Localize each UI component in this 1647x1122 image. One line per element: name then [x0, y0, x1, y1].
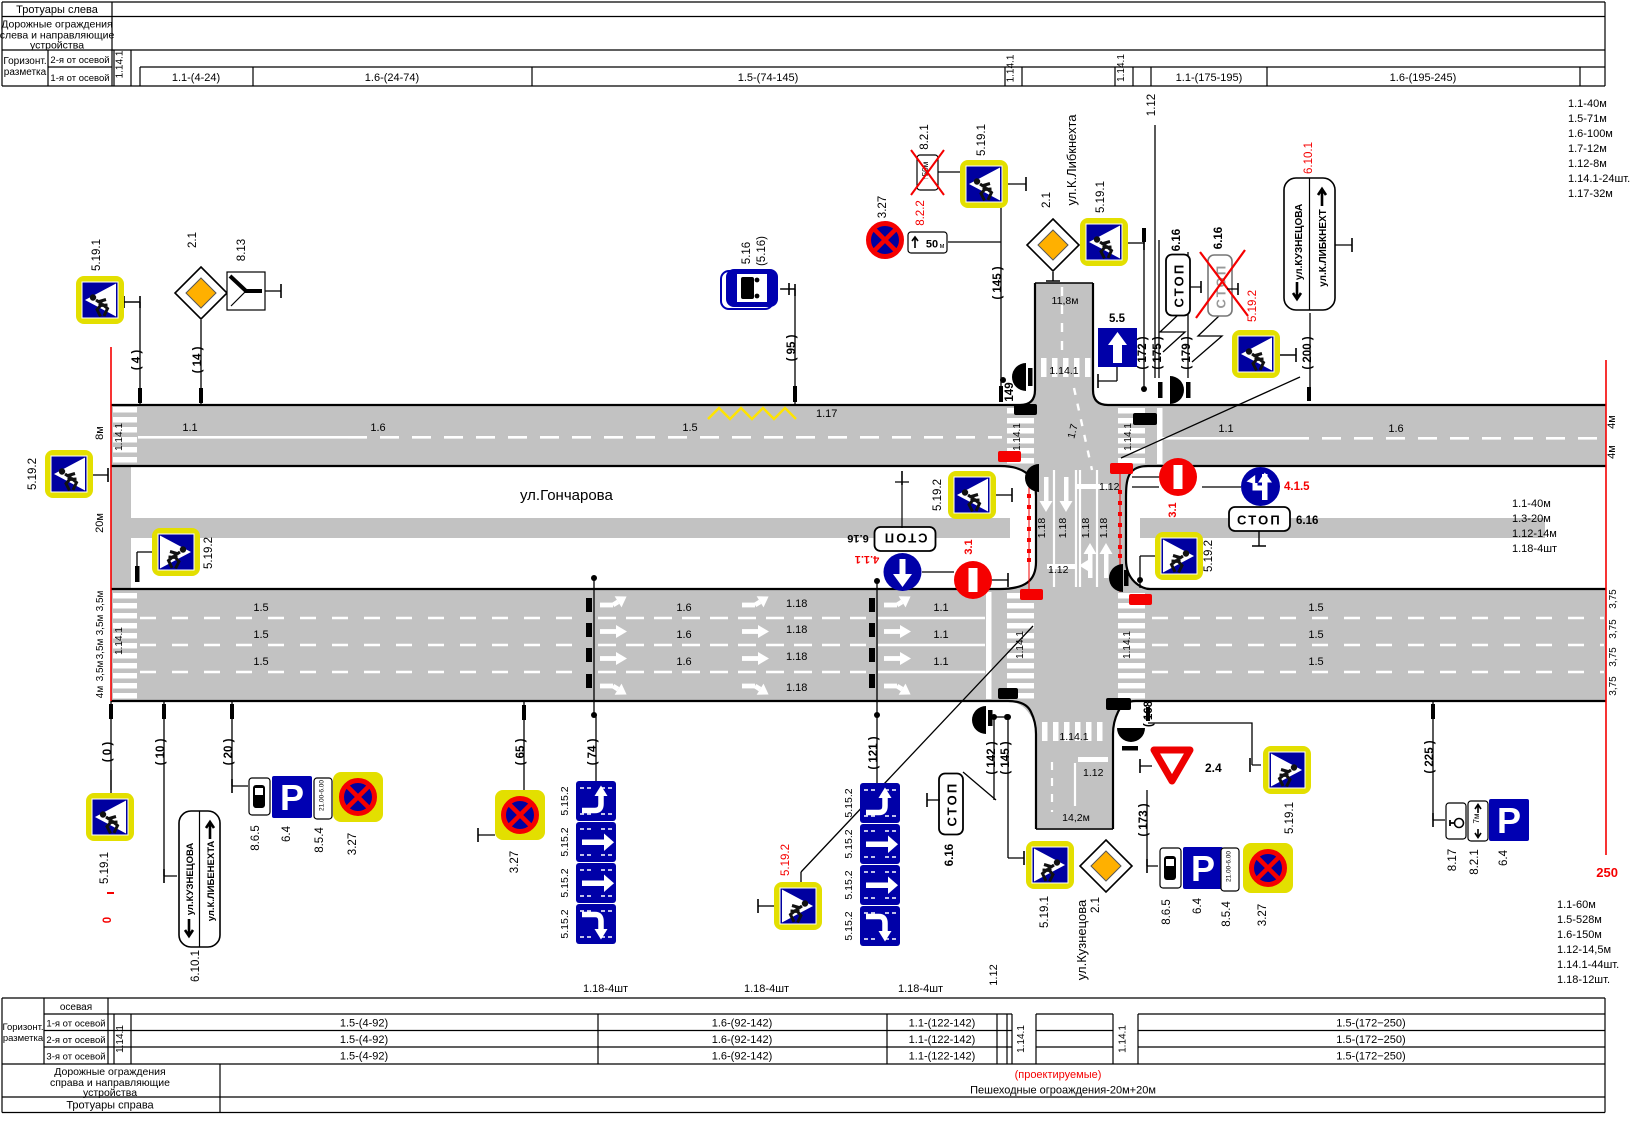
- svg-text:1.14.1: 1.14.1: [1059, 731, 1088, 743]
- svg-text:1.14.1: 1.14.1: [1012, 423, 1023, 451]
- svg-text:( 225 ): ( 225 ): [1424, 740, 1436, 773]
- svg-text:1.14.1: 1.14.1: [115, 1025, 126, 1053]
- svg-text:1.5: 1.5: [253, 602, 268, 614]
- svg-text:( 172 ): ( 172 ): [1137, 336, 1149, 369]
- svg-text:1.5-(172−250): 1.5-(172−250): [1336, 1051, 1405, 1063]
- svg-text:8.5.4: 8.5.4: [314, 827, 326, 853]
- svg-text:1.3-20м: 1.3-20м: [1512, 513, 1551, 525]
- svg-text:1.6: 1.6: [676, 629, 691, 641]
- svg-text:6.10.1: 6.10.1: [1303, 142, 1315, 174]
- svg-text:8.5.4: 8.5.4: [1221, 901, 1233, 927]
- svg-text:1.12-14,5м: 1.12-14,5м: [1557, 944, 1611, 956]
- svg-text:250: 250: [1596, 865, 1618, 880]
- svg-text:( 20 ): ( 20 ): [223, 738, 235, 765]
- svg-text:ул.К.ЛИБЕНЕХТА: ул.К.ЛИБЕНЕХТА: [206, 841, 217, 922]
- svg-text:ул.Гончарова: ул.Гончарова: [520, 487, 613, 504]
- svg-text:3,75: 3,75: [1608, 589, 1619, 609]
- svg-text:1.18: 1.18: [786, 651, 807, 663]
- svg-text:4м: 4м: [1606, 445, 1618, 459]
- svg-text:1.6: 1.6: [676, 602, 691, 614]
- svg-text:1.6-(92-142): 1.6-(92-142): [712, 1018, 773, 1030]
- svg-text:5.19.1: 5.19.1: [1284, 802, 1296, 834]
- svg-text:1.12-8м: 1.12-8м: [1568, 158, 1607, 170]
- svg-text:1.18-4шт: 1.18-4шт: [583, 983, 628, 995]
- svg-text:50: 50: [926, 239, 938, 251]
- svg-text:6.16: 6.16: [1171, 229, 1183, 251]
- svg-text:ул.К.ЛИБКНЕХТ: ул.К.ЛИБКНЕХТ: [1318, 209, 1329, 287]
- svg-text:5.19.2: 5.19.2: [1203, 540, 1215, 572]
- svg-text:3.1: 3.1: [1167, 502, 1179, 517]
- svg-text:1-я от осевой: 1-я от осевой: [50, 73, 109, 84]
- svg-text:Горизонт.: Горизонт.: [3, 56, 46, 67]
- svg-text:8.17: 8.17: [1447, 849, 1459, 871]
- svg-text:5.19.1: 5.19.1: [1039, 896, 1051, 928]
- svg-text:устройства: устройства: [83, 1087, 137, 1099]
- svg-text:1.1-(122-142): 1.1-(122-142): [909, 1051, 976, 1063]
- svg-text:( 14 ): ( 14 ): [192, 346, 204, 373]
- svg-text:2-я от осевой: 2-я от осевой: [46, 1035, 105, 1046]
- svg-text:1.18: 1.18: [1036, 518, 1048, 539]
- svg-text:разметка: разметка: [4, 67, 47, 78]
- svg-text:ул.К.Либкнехта: ул.К.Либкнехта: [1064, 114, 1079, 206]
- svg-text:1.1-(122-142): 1.1-(122-142): [909, 1018, 976, 1030]
- svg-text:5.19.1: 5.19.1: [1095, 181, 1107, 213]
- svg-text:( 173 ): ( 173 ): [1138, 803, 1150, 836]
- svg-text:1.1: 1.1: [182, 422, 197, 434]
- svg-text:1.1: 1.1: [933, 629, 948, 641]
- svg-text:2-я от осевой: 2-я от осевой: [50, 55, 109, 66]
- svg-text:1.5-(74-145): 1.5-(74-145): [738, 72, 799, 84]
- svg-text:3.27: 3.27: [877, 196, 889, 218]
- svg-text:1-я от осевой: 1-я от осевой: [46, 1019, 105, 1030]
- svg-text:( 179 ): ( 179 ): [1181, 336, 1193, 369]
- svg-text:1.14.1-44шт.: 1.14.1-44шт.: [1557, 959, 1619, 971]
- svg-text:3,75: 3,75: [1608, 619, 1619, 639]
- svg-text:1.12: 1.12: [988, 964, 1000, 985]
- svg-text:2.1: 2.1: [1041, 192, 1053, 208]
- svg-text:3,75: 3,75: [1608, 647, 1619, 667]
- svg-text:5.15.2: 5.15.2: [559, 786, 571, 815]
- svg-text:разметка: разметка: [3, 1033, 44, 1044]
- svg-text:Тротуары справа: Тротуары справа: [66, 1100, 154, 1112]
- svg-text:6.4: 6.4: [1498, 849, 1510, 866]
- svg-text:1.5-(172−250): 1.5-(172−250): [1336, 1018, 1405, 1030]
- svg-text:6.16: 6.16: [847, 532, 868, 544]
- svg-text:1.18: 1.18: [1098, 518, 1110, 539]
- svg-text:1.1-(175-195): 1.1-(175-195): [1176, 72, 1243, 84]
- svg-text:1.5-(4-92): 1.5-(4-92): [340, 1034, 388, 1046]
- svg-text:6.16: 6.16: [944, 844, 956, 866]
- svg-text:149: 149: [1004, 382, 1016, 401]
- svg-text:5.19.1: 5.19.1: [99, 852, 111, 884]
- svg-text:( 145 ): ( 145 ): [992, 266, 1004, 299]
- svg-text:1.7-12м: 1.7-12м: [1568, 143, 1607, 155]
- svg-text:5.15.2: 5.15.2: [843, 788, 855, 817]
- svg-text:( 175 ): ( 175 ): [1152, 336, 1164, 369]
- svg-text:5.15.2: 5.15.2: [843, 870, 855, 899]
- svg-text:Горизонт.: Горизонт.: [2, 1022, 43, 1033]
- svg-text:5.15.2: 5.15.2: [843, 829, 855, 858]
- svg-text:1.1: 1.1: [933, 602, 948, 614]
- svg-text:1.12: 1.12: [1048, 564, 1069, 576]
- svg-text:3.27: 3.27: [347, 833, 359, 855]
- svg-text:2.4: 2.4: [1205, 761, 1222, 775]
- svg-text:1.18-4шт: 1.18-4шт: [1512, 543, 1557, 555]
- svg-text:3.27: 3.27: [509, 851, 521, 873]
- svg-text:4.1.5: 4.1.5: [1284, 481, 1310, 493]
- svg-text:3,5м: 3,5м: [95, 614, 106, 635]
- svg-text:0: 0: [102, 917, 114, 923]
- svg-text:( 200 ): ( 200 ): [1302, 336, 1314, 369]
- svg-text:1.14.1: 1.14.1: [1006, 54, 1017, 82]
- svg-text:1.14.1: 1.14.1: [1123, 423, 1134, 451]
- svg-text:5.15.2: 5.15.2: [843, 911, 855, 940]
- svg-text:21.00-6.00: 21.00-6.00: [319, 780, 326, 811]
- svg-text:14,2м: 14,2м: [1062, 812, 1090, 824]
- svg-text:6.10.1: 6.10.1: [190, 950, 202, 982]
- svg-text:2.1: 2.1: [1090, 897, 1102, 913]
- svg-text:4м: 4м: [95, 686, 106, 699]
- svg-text:5.19.2: 5.19.2: [780, 844, 792, 876]
- svg-text:1.14.1: 1.14.1: [1116, 54, 1127, 82]
- svg-text:3,5м: 3,5м: [95, 660, 106, 681]
- svg-text:1.12: 1.12: [1083, 767, 1104, 779]
- svg-text:5.15.2: 5.15.2: [559, 909, 571, 938]
- svg-text:( 10 ): ( 10 ): [155, 738, 167, 765]
- svg-text:( 95 ): ( 95 ): [786, 334, 798, 361]
- svg-text:5.19.2: 5.19.2: [1247, 290, 1259, 322]
- svg-text:( 74 ): ( 74 ): [587, 738, 599, 765]
- svg-text:1.18-4шт: 1.18-4шт: [898, 983, 943, 995]
- svg-text:1.14.1: 1.14.1: [1122, 631, 1133, 659]
- svg-text:3,75: 3,75: [1608, 676, 1619, 696]
- svg-text:1.14.1: 1.14.1: [114, 423, 125, 451]
- svg-text:8.6.5: 8.6.5: [250, 825, 262, 851]
- svg-text:1.5: 1.5: [682, 422, 697, 434]
- svg-text:1.6-(92-142): 1.6-(92-142): [712, 1051, 773, 1063]
- svg-text:8.13: 8.13: [236, 239, 248, 261]
- svg-text:1.5: 1.5: [1308, 656, 1323, 668]
- svg-text:3,5м: 3,5м: [95, 638, 106, 659]
- svg-text:1.14.1: 1.14.1: [115, 50, 126, 78]
- svg-text:1.5: 1.5: [1308, 602, 1323, 614]
- svg-text:1.18: 1.18: [786, 624, 807, 636]
- svg-text:Пешеходные огроаждения-20м+20м: Пешеходные огроаждения-20м+20м: [970, 1085, 1156, 1097]
- svg-text:21.00-6.00: 21.00-6.00: [1226, 851, 1233, 882]
- svg-text:4м: 4м: [1606, 415, 1618, 429]
- svg-text:6.16: 6.16: [1296, 515, 1318, 527]
- svg-text:8м: 8м: [94, 426, 106, 440]
- svg-text:1.5-(4-92): 1.5-(4-92): [340, 1018, 388, 1030]
- svg-text:1.18-4шт: 1.18-4шт: [744, 983, 789, 995]
- svg-text:8.2.1: 8.2.1: [919, 124, 931, 150]
- svg-text:3,5м: 3,5м: [95, 590, 106, 611]
- svg-text:5.19.2: 5.19.2: [27, 458, 39, 490]
- svg-text:1.5: 1.5: [253, 656, 268, 668]
- svg-text:1.6-(92-142): 1.6-(92-142): [712, 1034, 773, 1046]
- svg-text:1.18: 1.18: [1057, 518, 1069, 539]
- svg-text:1.1-40м: 1.1-40м: [1512, 498, 1551, 510]
- svg-text:1.5-528м: 1.5-528м: [1557, 914, 1602, 926]
- svg-text:1.5-71м: 1.5-71м: [1568, 113, 1607, 125]
- svg-text:1.5-(172−250): 1.5-(172−250): [1336, 1034, 1405, 1046]
- svg-text:1.17-32м: 1.17-32м: [1568, 188, 1613, 200]
- svg-text:( 0 ): ( 0 ): [102, 742, 114, 763]
- svg-text:3.1: 3.1: [963, 539, 975, 554]
- svg-text:1.14.1: 1.14.1: [1118, 1025, 1129, 1053]
- svg-text:1.12: 1.12: [1099, 481, 1120, 493]
- svg-text:1.6: 1.6: [1388, 423, 1403, 435]
- svg-text:5.5: 5.5: [1109, 313, 1126, 325]
- svg-text:1.1-40м: 1.1-40м: [1568, 98, 1607, 110]
- svg-text:1.18-12шт.: 1.18-12шт.: [1557, 974, 1610, 986]
- svg-text:1.14.1-24шт.: 1.14.1-24шт.: [1568, 173, 1630, 185]
- svg-text:1.1: 1.1: [933, 656, 948, 668]
- svg-text:1.14.1: 1.14.1: [1016, 1025, 1027, 1053]
- svg-text:1.18: 1.18: [786, 682, 807, 694]
- svg-text:8.2.2: 8.2.2: [915, 200, 927, 226]
- svg-text:6.16: 6.16: [1213, 227, 1225, 249]
- svg-text:1.1-60м: 1.1-60м: [1557, 899, 1596, 911]
- svg-text:5.15.2: 5.15.2: [559, 868, 571, 897]
- svg-text:1.18: 1.18: [786, 598, 807, 610]
- svg-text:1.6-(24-74): 1.6-(24-74): [365, 72, 419, 84]
- svg-text:1.1: 1.1: [1218, 423, 1233, 435]
- svg-text:( 65 ): ( 65 ): [515, 738, 527, 765]
- svg-text:1.17: 1.17: [816, 408, 837, 420]
- svg-text:1.5: 1.5: [253, 629, 268, 641]
- svg-text:11,8м: 11,8м: [1052, 295, 1079, 307]
- svg-text:1.5-(4-92): 1.5-(4-92): [340, 1051, 388, 1063]
- svg-text:7м: 7м: [1472, 814, 1481, 824]
- svg-text:3.27: 3.27: [1257, 904, 1269, 926]
- svg-text:5.19.1: 5.19.1: [976, 124, 988, 156]
- svg-text:1.1-(122-142): 1.1-(122-142): [909, 1034, 976, 1046]
- svg-text:1.5: 1.5: [1308, 629, 1323, 641]
- svg-text:Тротуары слева: Тротуары слева: [16, 4, 99, 16]
- svg-text:1.12: 1.12: [1146, 94, 1158, 116]
- svg-text:(5.16): (5.16): [756, 236, 768, 266]
- svg-text:2.1: 2.1: [187, 232, 199, 248]
- svg-text:(проектируемые): (проектируемые): [1015, 1069, 1102, 1081]
- svg-text:8.6.5: 8.6.5: [1161, 899, 1173, 925]
- svg-text:( 168: ( 168: [1143, 700, 1155, 727]
- svg-text:5.19.1: 5.19.1: [91, 239, 103, 271]
- svg-text:1.12-14м: 1.12-14м: [1512, 528, 1557, 540]
- svg-text:устройства: устройства: [30, 40, 84, 52]
- svg-text:1.14.1: 1.14.1: [114, 627, 125, 655]
- svg-text:6.4: 6.4: [1192, 897, 1204, 914]
- svg-text:осевая: осевая: [60, 1002, 92, 1013]
- svg-text:8.2.1: 8.2.1: [1469, 849, 1481, 875]
- svg-text:1.6: 1.6: [676, 656, 691, 668]
- svg-text:3-я от осевой: 3-я от осевой: [46, 1052, 105, 1063]
- svg-text:м: м: [940, 243, 945, 250]
- svg-text:ул.КУЗНЕЦОВА: ул.КУЗНЕЦОВА: [1294, 204, 1305, 280]
- svg-text:20м: 20м: [94, 513, 106, 533]
- svg-text:( 121 ): ( 121 ): [868, 736, 880, 769]
- svg-text:( 142 ): ( 142 ): [986, 741, 998, 774]
- svg-text:1.6: 1.6: [370, 422, 385, 434]
- svg-text:1.6-100м: 1.6-100м: [1568, 128, 1613, 140]
- svg-text:1.1-(4-24): 1.1-(4-24): [172, 72, 220, 84]
- svg-text:1.6-(195-245): 1.6-(195-245): [1390, 72, 1457, 84]
- svg-text:5.15.2: 5.15.2: [559, 827, 571, 856]
- svg-text:1.6-150м: 1.6-150м: [1557, 929, 1602, 941]
- svg-text:( 4 ): ( 4 ): [131, 350, 143, 371]
- svg-text:4.1.1: 4.1.1: [855, 553, 879, 565]
- svg-text:1.14.1: 1.14.1: [1049, 365, 1078, 377]
- svg-text:6.4: 6.4: [281, 825, 293, 842]
- svg-text:5.19.2: 5.19.2: [932, 479, 944, 511]
- svg-text:ул.Кузнецова: ул.Кузнецова: [1074, 899, 1089, 980]
- svg-text:( 145 ): ( 145 ): [1000, 741, 1012, 774]
- svg-text:ул.КУЗНЕЦОВА: ул.КУЗНЕЦОВА: [185, 843, 196, 916]
- svg-text:5.16: 5.16: [741, 242, 753, 264]
- svg-text:1.18: 1.18: [1080, 518, 1092, 539]
- svg-text:5.19.2: 5.19.2: [203, 537, 215, 569]
